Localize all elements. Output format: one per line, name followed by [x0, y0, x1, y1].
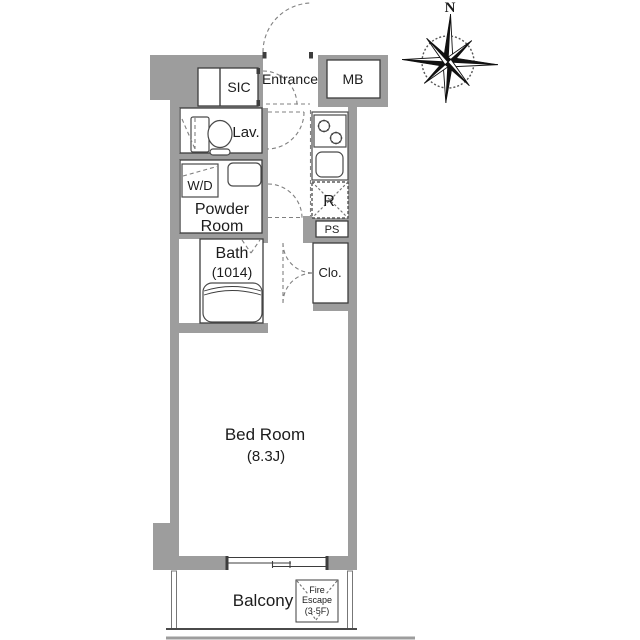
floor-plan-canvas: N SIC Entrance MB Lav. W/D Powder Room B… — [0, 0, 640, 640]
wall-segment-corridor — [262, 108, 268, 243]
room-label-bedroom: Bed Room — [225, 425, 305, 444]
room-label-powder-line1: Powder — [195, 201, 250, 218]
compass-rose-icon — [400, 12, 501, 106]
wall-segment-right — [348, 107, 357, 570]
hall-area — [268, 243, 313, 333]
room-label-closet: Clo. — [318, 265, 341, 280]
room-label-bath: Bath — [216, 245, 249, 262]
sic-jamb — [257, 100, 261, 106]
room-label-bedroom-size: (8.3J) — [247, 448, 285, 465]
floor-plan-drawing: N SIC Entrance MB Lav. W/D Powder Room B… — [0, 0, 640, 640]
wall-segment — [311, 303, 357, 311]
entrance-jamb — [263, 52, 267, 59]
balcony-wall-right — [348, 571, 353, 629]
stove — [314, 115, 346, 147]
compass-north-label: N — [445, 0, 456, 16]
label-pipe-shaft: PS — [325, 224, 340, 236]
entrance-jamb — [309, 52, 313, 59]
label-refrigerator: R — [323, 193, 335, 210]
vanity-sink — [228, 163, 261, 186]
room-label-mb: MB — [343, 71, 364, 87]
wall-segment — [170, 323, 270, 333]
sic-jamb — [257, 68, 261, 74]
corridor-area — [268, 108, 311, 216]
balcony-wall-left — [172, 571, 177, 629]
bathtub-icon — [203, 283, 262, 322]
label-fire-escape-line1: Fire — [309, 585, 325, 595]
entrance-door-swing — [263, 3, 312, 52]
wall-segment-left — [170, 108, 179, 523]
kitchen-sink — [316, 152, 343, 177]
room-label-powder-line2: Room — [201, 218, 244, 235]
label-fire-escape-line3: (3·5F) — [305, 606, 330, 616]
wall-step — [153, 523, 170, 570]
label-washer-dryer: W/D — [187, 178, 212, 193]
room-label-balcony: Balcony — [233, 591, 294, 610]
corridor-area — [268, 216, 303, 243]
room-label-bath-size: (1014) — [212, 264, 252, 280]
room-label-sic: SIC — [227, 79, 250, 95]
room-label-lav: Lav. — [232, 124, 259, 141]
bedroom-area — [179, 333, 348, 556]
wall-segment-bottom — [327, 556, 357, 570]
room-label-entrance: Entrance — [262, 71, 318, 87]
label-fire-escape-line2: Escape — [302, 595, 332, 605]
